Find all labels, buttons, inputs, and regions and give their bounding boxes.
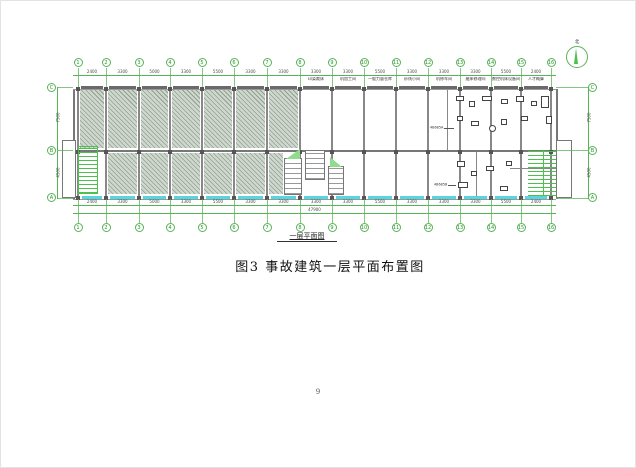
column-marker: [426, 150, 430, 154]
dimension-label: 7500: [587, 110, 592, 126]
hatched-room: [108, 153, 137, 194]
grid-column-bubble: 14: [487, 223, 496, 232]
column-marker: [330, 150, 334, 154]
plan-title: 一层平面图: [277, 232, 337, 242]
grid-column-bubble: 11: [392, 58, 401, 67]
column-marker: [426, 87, 430, 91]
grid-row-bubble: C: [588, 83, 597, 92]
equipment-block: [457, 116, 463, 121]
dimension-label: 3300: [170, 199, 202, 204]
grid-extension-line: [556, 87, 588, 88]
dimension-line: [588, 87, 589, 199]
equipment-block: [546, 116, 552, 124]
total-dimension-label: 47900: [73, 207, 556, 212]
grid-column-bubble: 6: [230, 58, 239, 67]
wall-segment: [447, 90, 448, 150]
staircase: [62, 140, 76, 198]
dimension-line: [73, 75, 556, 76]
room-label: 机加工间: [332, 77, 364, 86]
dimension-label: 2400: [521, 199, 551, 204]
equipment-block: [458, 182, 468, 188]
grid-column-bubble: 15: [517, 223, 526, 232]
wall-segment: [524, 86, 548, 89]
grid-column-bubble: 5: [198, 223, 207, 232]
wall-segment: [463, 86, 488, 89]
grid-column-bubble: 13: [456, 223, 465, 232]
grid-row-bubble: C: [47, 83, 56, 92]
dimension-label: 3300: [300, 69, 332, 74]
wall-segment: [205, 86, 231, 89]
wall-segment: [237, 86, 264, 89]
column-marker: [394, 150, 398, 154]
grid-column-bubble: 12: [424, 58, 433, 67]
wall-segment: [142, 86, 167, 89]
equipment-block: [531, 101, 537, 106]
dimension-label: 3300: [106, 69, 139, 74]
wall-segment: [520, 89, 522, 198]
wall-segment: [399, 86, 425, 89]
room-label: 磨床修理间: [460, 77, 491, 86]
dimension-label: 4500: [56, 165, 61, 181]
hatched-room: [269, 153, 283, 194]
grid-column-bubble: 16: [547, 223, 556, 232]
dimension-line: [57, 87, 58, 199]
wall-segment: [431, 86, 457, 89]
room-label: 数控机床设备间: [491, 77, 521, 86]
grid-column-bubble: 16: [547, 58, 556, 67]
room-label: 纱线小间: [396, 77, 428, 86]
annotation-tag: 4B685A: [430, 125, 443, 129]
equipment-block: [456, 96, 464, 101]
grid-extension-line: [556, 150, 588, 151]
equipment-block: [471, 171, 477, 176]
grid-column-bubble: 3: [135, 58, 144, 67]
wall-segment: [335, 86, 361, 89]
column-marker: [104, 87, 108, 91]
grid-column-bubble: 15: [517, 58, 526, 67]
equipment-block: [471, 121, 479, 126]
grid-column-bubble: 4: [166, 223, 175, 232]
wall-segment: [490, 89, 492, 198]
grid-row-bubble: B: [47, 146, 56, 155]
grid-column-bubble: 2: [102, 58, 111, 67]
equipment-block: [457, 161, 465, 167]
grid-column-bubble: 1: [74, 223, 83, 232]
dimension-label: 3300: [396, 199, 428, 204]
equipment-block: [501, 99, 508, 104]
dimension-label: 3300: [234, 69, 267, 74]
wall-segment: [201, 89, 203, 198]
column-marker: [330, 87, 334, 91]
hatched-room: [204, 90, 232, 148]
wall-segment: [270, 86, 297, 89]
room-label: 机修车间: [428, 77, 460, 86]
dimension-label: 3300: [396, 69, 428, 74]
dimension-label: 3300: [170, 69, 202, 74]
dimension-label: 3300: [300, 199, 332, 204]
column-marker: [265, 87, 269, 91]
grid-extension-line: [57, 198, 73, 199]
hatched-room: [141, 153, 168, 194]
column-marker: [137, 150, 141, 154]
grid-extension-line: [57, 87, 73, 88]
column-marker: [489, 87, 493, 91]
equipment-block: [516, 96, 524, 102]
column-marker: [265, 150, 269, 154]
dimension-label: 4500: [587, 165, 592, 181]
wall-segment: [363, 89, 365, 198]
column-marker: [362, 87, 366, 91]
hatched-room: [108, 90, 137, 148]
wall-segment: [395, 89, 397, 198]
wall-segment: [81, 86, 103, 89]
equipment-block: [482, 96, 492, 101]
staircase: [328, 166, 344, 195]
hatched-room: [236, 153, 265, 194]
staircase: [556, 140, 572, 198]
grid-column-bubble: 3: [135, 223, 144, 232]
dimension-label: 3300: [460, 69, 491, 74]
staircase: [305, 150, 325, 180]
grid-extension-line: [551, 68, 552, 87]
equipment-block: [500, 186, 508, 191]
wall-segment: [169, 89, 171, 198]
staircase: [78, 146, 98, 194]
dimension-label: 3300: [234, 199, 267, 204]
grid-column-bubble: 5: [198, 58, 207, 67]
annotation-leader: [448, 185, 456, 186]
grid-column-bubble: 13: [456, 58, 465, 67]
room-label: 印染裁床: [300, 77, 332, 86]
dimension-label: 3300: [428, 199, 460, 204]
dimension-label: 3300: [267, 69, 300, 74]
north-arrow-icon: [574, 48, 578, 64]
equipment-block: [486, 166, 494, 171]
column-marker: [200, 87, 204, 91]
dimension-label: 3300: [428, 69, 460, 74]
equipment-block: [501, 119, 507, 125]
north-compass: [566, 46, 588, 68]
dimension-label: 3300: [332, 199, 364, 204]
wall-segment: [367, 86, 393, 89]
column-marker: [76, 87, 80, 91]
wall-segment: [233, 89, 235, 198]
north-label: 北: [566, 39, 588, 45]
annotation-leader: [444, 128, 454, 129]
column-marker: [232, 150, 236, 154]
column-marker: [519, 150, 523, 154]
grid-column-bubble: 8: [296, 223, 305, 232]
room-label: 一般力量仓库: [364, 77, 396, 86]
grid-column-bubble: 9: [328, 223, 337, 232]
dimension-label: 5500: [202, 199, 234, 204]
column-marker: [168, 87, 172, 91]
hatched-room: [141, 90, 168, 148]
grid-column-bubble: 12: [424, 223, 433, 232]
annotation-tag: 4B685B: [434, 182, 447, 186]
grid-column-bubble: 10: [360, 223, 369, 232]
dimension-label: 2400: [78, 69, 106, 74]
column-marker: [200, 150, 204, 154]
dimension-label: 2400: [521, 69, 551, 74]
dimension-label: 3300: [332, 69, 364, 74]
column-marker: [362, 150, 366, 154]
hatched-room: [269, 90, 298, 148]
column-marker: [104, 150, 108, 154]
dimension-label: 5500: [364, 69, 396, 74]
floor-plan-drawing: 北 11223344556677889910101111121213131414…: [0, 0, 636, 250]
dimension-label: 3300: [267, 199, 300, 204]
column-marker: [394, 87, 398, 91]
grid-column-bubble: 14: [487, 58, 496, 67]
column-marker: [137, 87, 141, 91]
hatched-room: [172, 153, 200, 194]
column-marker: [458, 150, 462, 154]
wall-segment: [73, 89, 556, 90]
dimension-label: 3300: [460, 199, 491, 204]
wall-segment: [427, 89, 429, 198]
room-label: 人才概算: [521, 77, 551, 86]
column-marker: [519, 87, 523, 91]
grid-column-bubble: 2: [102, 223, 111, 232]
grid-row-bubble: A: [47, 193, 56, 202]
wall-segment: [173, 86, 199, 89]
dimension-label: 2400: [78, 199, 106, 204]
grid-column-bubble: 7: [263, 223, 272, 232]
column-marker: [458, 87, 462, 91]
grid-row-bubble: A: [588, 193, 597, 202]
grid-column-bubble: 1: [74, 58, 83, 67]
dimension-label: 5500: [202, 69, 234, 74]
grid-column-bubble: 11: [392, 223, 401, 232]
column-marker: [549, 87, 553, 91]
equipment-block: [521, 116, 528, 121]
column-marker: [232, 87, 236, 91]
dimension-label: 5000: [139, 199, 170, 204]
column-marker: [489, 150, 493, 154]
grid-extension-line: [556, 198, 588, 199]
equipment-block: [489, 125, 496, 132]
dimension-label: 5500: [491, 199, 521, 204]
hatched-room: [172, 90, 200, 148]
grid-row-bubble: B: [588, 146, 597, 155]
grid-extension-line: [57, 150, 73, 151]
dimension-label: 7500: [56, 110, 61, 126]
stair-rail: [543, 150, 544, 196]
figure-caption: 图3 事故建筑一层平面布置图: [40, 256, 620, 275]
grid-column-bubble: 7: [263, 58, 272, 67]
hatched-room: [204, 153, 232, 194]
equipment-block: [541, 96, 549, 108]
hatched-room: [236, 90, 265, 148]
wall-segment: [138, 89, 140, 198]
grid-column-bubble: 6: [230, 223, 239, 232]
grid-column-bubble: 8: [296, 58, 305, 67]
grid-column-bubble: 9: [328, 58, 337, 67]
equipment-block: [506, 161, 512, 166]
dimension-label: 5500: [491, 69, 521, 74]
grid-column-bubble: 10: [360, 58, 369, 67]
wall-segment: [109, 86, 136, 89]
column-marker: [168, 150, 172, 154]
equipment-block: [469, 101, 475, 107]
wall-segment: [494, 86, 518, 89]
wall-segment: [303, 86, 329, 89]
column-marker: [298, 87, 302, 91]
dimension-label: 5500: [364, 199, 396, 204]
dimension-label: 5000: [139, 69, 170, 74]
dimension-line: [73, 213, 556, 214]
grid-column-bubble: 4: [166, 58, 175, 67]
wall-segment: [105, 89, 107, 198]
page-number: 9: [0, 388, 636, 396]
staircase: [284, 158, 302, 195]
dimension-label: 3300: [106, 199, 139, 204]
wall-segment: [266, 89, 268, 198]
document-page: 北 11223344556677889910101111121213131414…: [0, 0, 636, 468]
hatched-room: [80, 90, 104, 148]
